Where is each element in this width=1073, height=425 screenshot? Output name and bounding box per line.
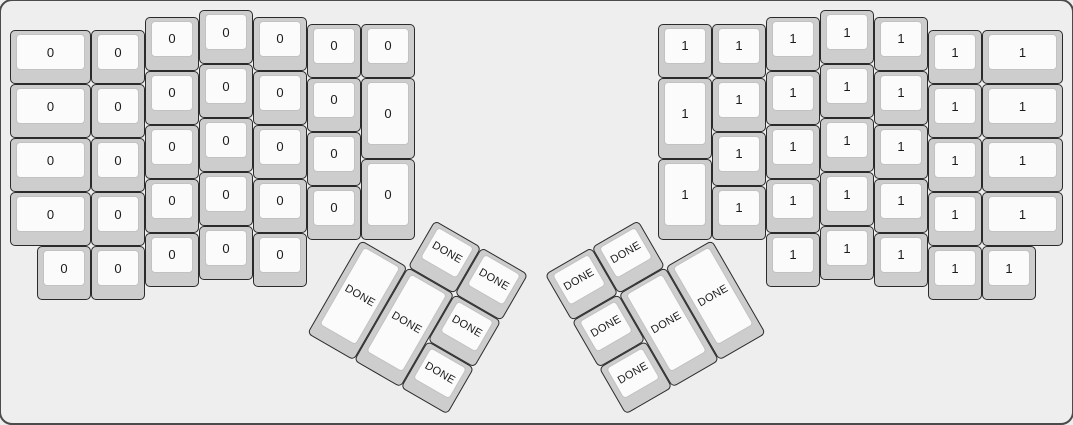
keycap-label: 1 <box>772 21 814 57</box>
keycap-1[interactable]: 1 <box>658 24 712 78</box>
keycap-label: 1 <box>880 183 922 219</box>
keycap-label: 1 <box>988 88 1057 124</box>
keycap-label: 0 <box>16 34 85 70</box>
keycap-1[interactable]: 1 <box>982 246 1036 300</box>
keycap-label: 0 <box>151 129 193 165</box>
keycap-label: 0 <box>97 142 139 178</box>
keycap-label: 0 <box>259 75 301 111</box>
keycap-1[interactable]: 1 <box>766 17 820 71</box>
keycap-label: 1 <box>772 237 814 273</box>
keycap-label: 0 <box>313 136 355 172</box>
keycap-label: 1 <box>826 122 868 158</box>
keycap-1[interactable]: 1 <box>982 30 1063 84</box>
keycap-0[interactable]: 0 <box>10 138 91 192</box>
keycap-1[interactable]: 1 <box>820 172 874 226</box>
keycap-1[interactable]: 1 <box>982 138 1063 192</box>
keycap-1[interactable]: 1 <box>766 179 820 233</box>
keycap-1[interactable]: 1 <box>928 30 982 84</box>
keycap-1[interactable]: 1 <box>712 132 766 186</box>
keycap-label: 1 <box>880 129 922 165</box>
keycap-label: 0 <box>151 21 193 57</box>
keycap-1[interactable]: 1 <box>982 192 1063 246</box>
keycap-label: 1 <box>826 176 868 212</box>
keycap-0[interactable]: 0 <box>307 24 361 78</box>
keycap-label: 0 <box>259 129 301 165</box>
keycap-1[interactable]: 1 <box>820 10 874 64</box>
keycap-1[interactable]: 1 <box>874 17 928 71</box>
keycap-0[interactable]: 0 <box>253 179 307 233</box>
keycap-label: 1 <box>988 196 1057 232</box>
keycap-1[interactable]: 1 <box>928 84 982 138</box>
keycap-label: 0 <box>367 82 409 145</box>
keycap-label: 1 <box>934 196 976 232</box>
keycap-label: 0 <box>151 75 193 111</box>
keycap-label: 1 <box>664 82 706 145</box>
keycap-1[interactable]: 1 <box>658 78 712 159</box>
keycap-label: 0 <box>259 237 301 273</box>
keycap-0[interactable]: 0 <box>145 179 199 233</box>
keycap-1[interactable]: 1 <box>712 24 766 78</box>
keycap-label: 0 <box>259 183 301 219</box>
keycap-label: 1 <box>718 190 760 226</box>
keycap-1[interactable]: 1 <box>712 78 766 132</box>
keycap-0[interactable]: 0 <box>307 186 361 240</box>
keycap-label: 0 <box>43 250 85 286</box>
keycap-label: 1 <box>718 136 760 172</box>
keycap-0[interactable]: 0 <box>307 78 361 132</box>
keycap-0[interactable]: 0 <box>307 132 361 186</box>
keycap-1[interactable]: 1 <box>928 138 982 192</box>
keycap-1[interactable]: 1 <box>874 179 928 233</box>
keycap-label: 1 <box>772 183 814 219</box>
keycap-0[interactable]: 0 <box>361 24 415 78</box>
keycap-1[interactable]: 1 <box>820 118 874 172</box>
keycap-label: 0 <box>205 176 247 212</box>
keycap-0[interactable]: 0 <box>361 159 415 240</box>
keycap-0[interactable]: 0 <box>91 30 145 84</box>
keycap-label: 0 <box>97 196 139 232</box>
keycap-label: 1 <box>826 68 868 104</box>
keycap-label: DONE <box>467 253 521 305</box>
keycap-label: 1 <box>772 129 814 165</box>
keycap-1[interactable]: 1 <box>874 233 928 287</box>
keycap-label: 0 <box>16 196 85 232</box>
keycap-0[interactable]: 0 <box>91 246 145 300</box>
keycap-1[interactable]: 1 <box>928 192 982 246</box>
keycap-1[interactable]: 1 <box>820 226 874 280</box>
keycap-0[interactable]: 0 <box>145 233 199 287</box>
keycap-label: 1 <box>988 142 1057 178</box>
keycap-0[interactable]: 0 <box>199 172 253 226</box>
keycap-label: 1 <box>880 21 922 57</box>
keycap-label: 0 <box>97 250 139 286</box>
keycap-0[interactable]: 0 <box>10 84 91 138</box>
keycap-1[interactable]: 1 <box>766 233 820 287</box>
keycap-0[interactable]: 0 <box>91 192 145 246</box>
keycap-label: 1 <box>664 163 706 226</box>
keycap-label: DONE <box>420 226 474 278</box>
keycap-1[interactable]: 1 <box>712 186 766 240</box>
keycap-label: 1 <box>772 75 814 111</box>
keycap-1[interactable]: 1 <box>820 64 874 118</box>
keycap-0[interactable]: 0 <box>91 138 145 192</box>
keycap-label: 1 <box>880 237 922 273</box>
keyboard-layout-canvas: 00000000000000000000000000000000 1111111… <box>0 0 1073 424</box>
keycap-0[interactable]: 0 <box>10 30 91 84</box>
keycap-0[interactable]: 0 <box>253 17 307 71</box>
keycap-0[interactable]: 0 <box>253 125 307 179</box>
keycap-0[interactable]: 0 <box>10 192 91 246</box>
keycap-label: 1 <box>826 230 868 266</box>
keycap-label: 0 <box>16 142 85 178</box>
keycap-label: 0 <box>259 21 301 57</box>
keycap-1[interactable]: 1 <box>658 159 712 240</box>
keycap-label: 1 <box>988 34 1057 70</box>
keycap-label: 1 <box>718 28 760 64</box>
keycap-label: 0 <box>313 28 355 64</box>
keycap-label: 0 <box>367 163 409 226</box>
keycap-1[interactable]: 1 <box>766 125 820 179</box>
keycap-label: 0 <box>205 230 247 266</box>
keycap-label: 1 <box>880 75 922 111</box>
keycap-0[interactable]: 0 <box>91 84 145 138</box>
keycap-0[interactable]: 0 <box>253 233 307 287</box>
keycap-label: 1 <box>934 88 976 124</box>
keycap-0[interactable]: 0 <box>199 10 253 64</box>
keycap-label: 0 <box>205 14 247 50</box>
keycap-label: 0 <box>367 28 409 64</box>
keycap-0[interactable]: 0 <box>145 125 199 179</box>
keycap-label: 1 <box>934 142 976 178</box>
keycap-label: 0 <box>97 88 139 124</box>
keycap-0[interactable]: 0 <box>199 226 253 280</box>
keycap-label: 0 <box>151 237 193 273</box>
keycap-label: 0 <box>313 190 355 226</box>
keycap-0[interactable]: 0 <box>145 71 199 125</box>
keycap-label: 0 <box>151 183 193 219</box>
keycap-label: DONE <box>599 226 653 278</box>
keycap-label: 0 <box>97 34 139 70</box>
keycap-label: 1 <box>718 82 760 118</box>
keycap-label: 0 <box>313 82 355 118</box>
keycap-1[interactable]: 1 <box>874 125 928 179</box>
keycap-label: 0 <box>205 122 247 158</box>
keycap-1[interactable]: 1 <box>766 71 820 125</box>
keycap-label: 0 <box>205 68 247 104</box>
keycap-label: 0 <box>16 88 85 124</box>
keycap-label: 1 <box>664 28 706 64</box>
keycap-0[interactable]: 0 <box>37 246 91 300</box>
keycap-label: 1 <box>934 34 976 70</box>
keycap-label: 1 <box>934 250 976 286</box>
keycap-0[interactable]: 0 <box>253 71 307 125</box>
keycap-0[interactable]: 0 <box>199 64 253 118</box>
keycap-0[interactable]: 0 <box>199 118 253 172</box>
keycap-1[interactable]: 1 <box>874 71 928 125</box>
keycap-label: 1 <box>988 250 1030 286</box>
keycap-1[interactable]: 1 <box>982 84 1063 138</box>
keycap-0[interactable]: 0 <box>145 17 199 71</box>
keycap-0[interactable]: 0 <box>361 78 415 159</box>
keycap-1[interactable]: 1 <box>928 246 982 300</box>
keycap-label: DONE <box>552 253 606 305</box>
keycap-label: 1 <box>826 14 868 50</box>
